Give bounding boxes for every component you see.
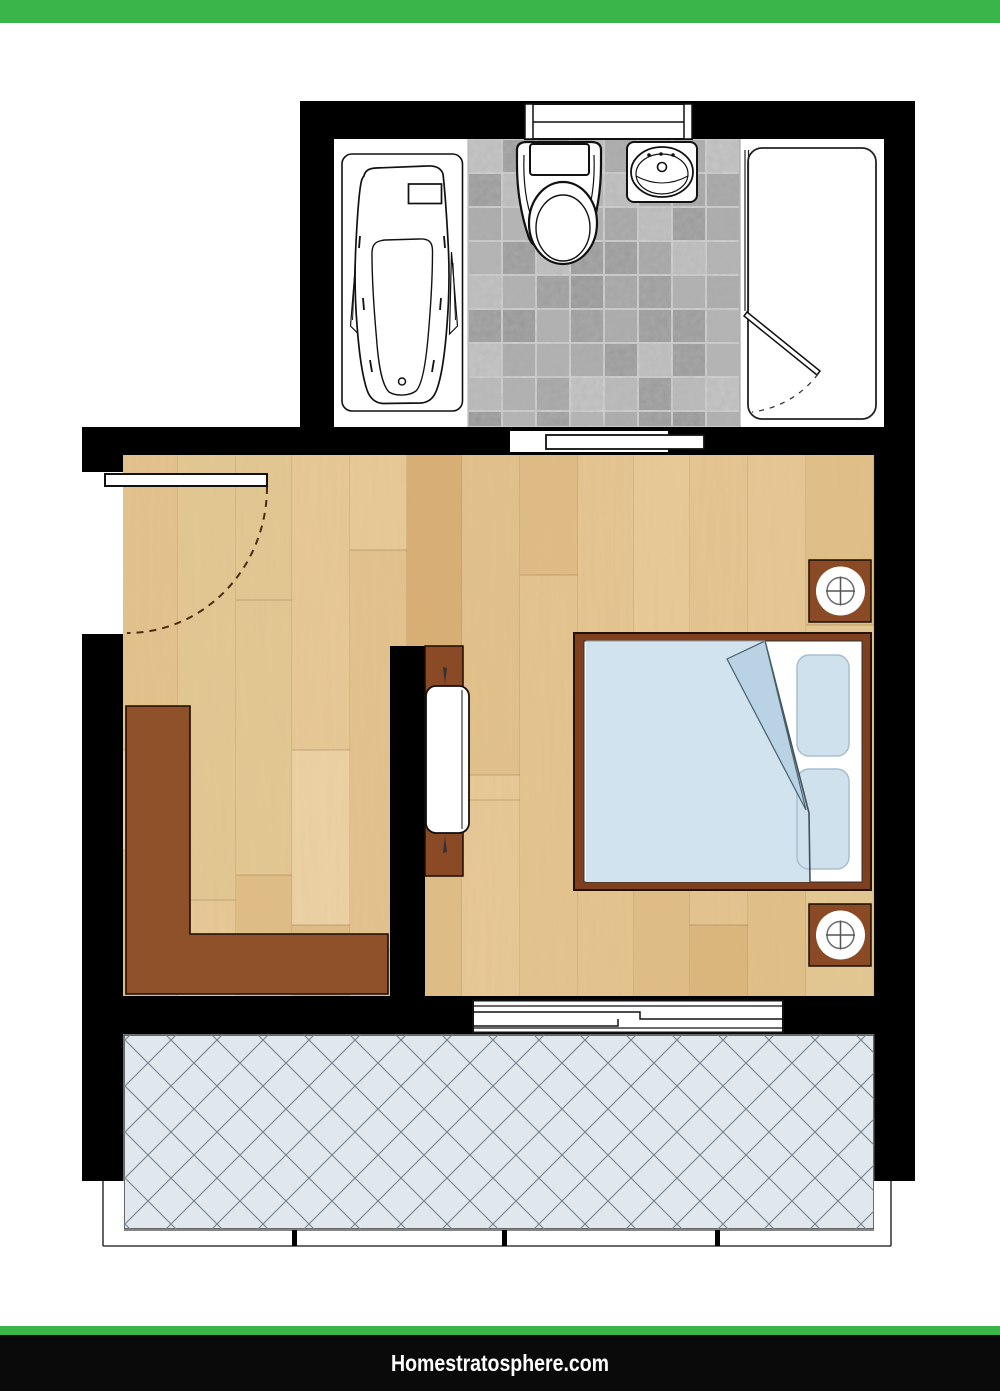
svg-text:Homestratosphere.com: Homestratosphere.com xyxy=(391,1350,609,1376)
